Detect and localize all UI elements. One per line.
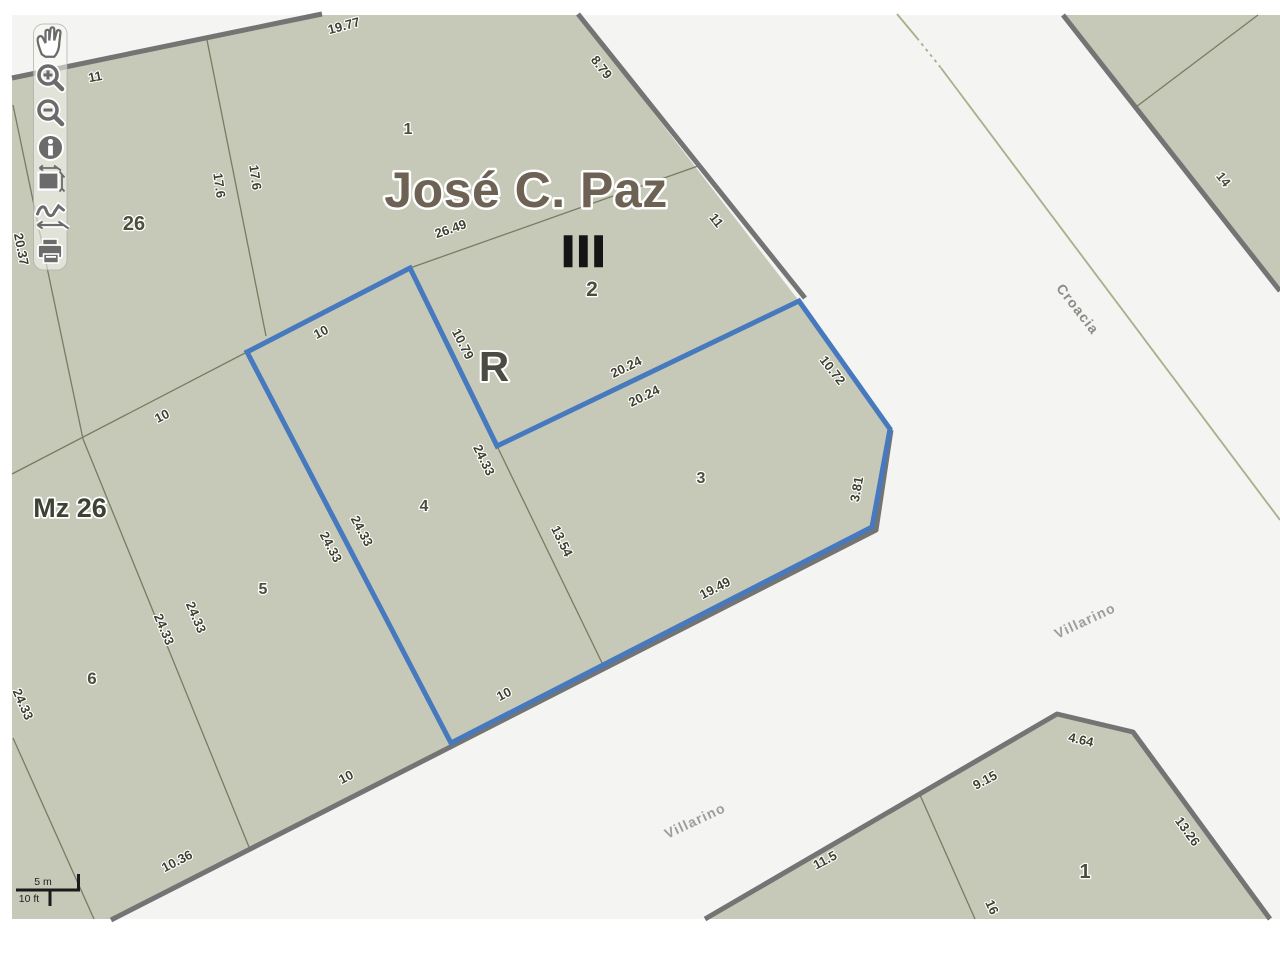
svg-text:Mz 26: Mz 26 — [33, 493, 107, 523]
svg-text:6: 6 — [87, 669, 96, 688]
svg-text:4: 4 — [420, 498, 429, 515]
svg-text:R: R — [479, 343, 509, 390]
svg-text:1: 1 — [1079, 861, 1090, 883]
svg-text:3: 3 — [697, 470, 706, 487]
svg-text:5 m: 5 m — [34, 876, 52, 888]
svg-text:III: III — [562, 228, 608, 276]
svg-text:10 ft: 10 ft — [19, 893, 40, 905]
svg-text:1: 1 — [404, 121, 413, 138]
svg-text:11: 11 — [87, 68, 103, 85]
svg-text:José C. Paz: José C. Paz — [384, 162, 667, 218]
svg-text:2: 2 — [586, 278, 598, 301]
svg-text:26: 26 — [123, 213, 145, 235]
svg-text:5: 5 — [259, 581, 268, 598]
